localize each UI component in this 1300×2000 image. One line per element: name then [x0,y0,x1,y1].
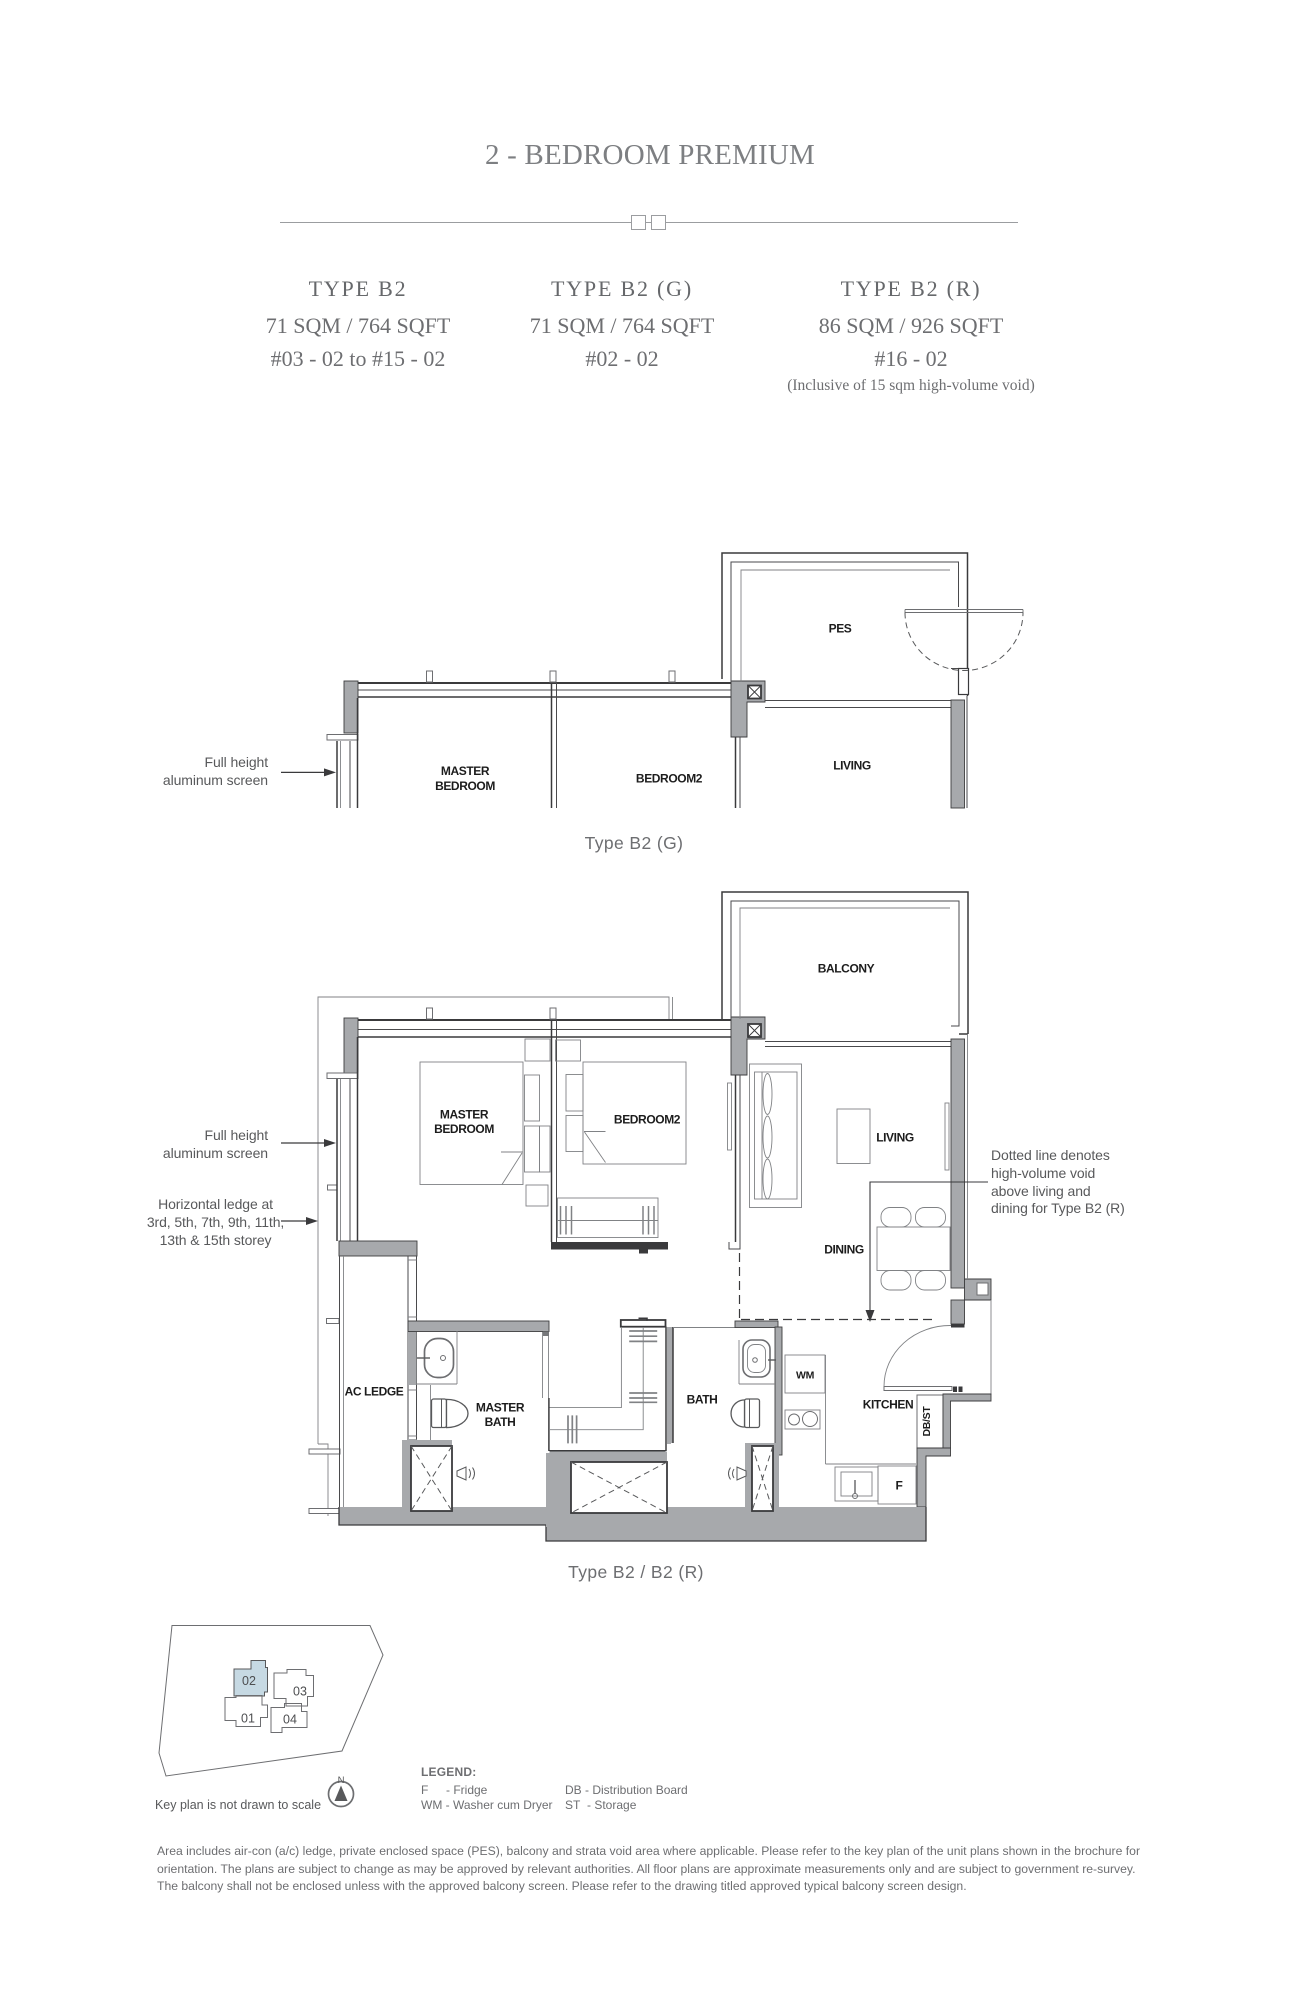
svg-text:BATH: BATH [485,1415,516,1429]
svg-text:DB/ST: DB/ST [921,1406,933,1437]
svg-text:02: 02 [242,1674,256,1688]
svg-text:BEDROOM: BEDROOM [435,779,495,793]
svg-text:MASTER: MASTER [441,764,490,778]
svg-text:LIVING: LIVING [833,759,871,773]
svg-text:MASTER: MASTER [476,1401,525,1415]
svg-text:F: F [896,1479,903,1493]
svg-text:01: 01 [241,1712,255,1726]
svg-text:BEDROOM2: BEDROOM2 [636,772,703,786]
svg-text:03: 03 [293,1685,307,1699]
svg-text:KITCHEN: KITCHEN [863,1398,914,1412]
svg-text:BATH: BATH [687,1393,718,1407]
svg-text:AC LEDGE: AC LEDGE [345,1385,404,1399]
svg-text:BALCONY: BALCONY [818,962,875,976]
svg-text:WM: WM [796,1370,815,1382]
svg-text:PES: PES [829,622,852,636]
svg-text:N: N [338,1775,345,1786]
svg-text:BEDROOM2: BEDROOM2 [614,1113,681,1127]
svg-text:MASTER: MASTER [440,1108,489,1122]
svg-text:BEDROOM: BEDROOM [434,1122,494,1136]
svg-text:04: 04 [283,1713,297,1727]
svg-text:LIVING: LIVING [876,1131,914,1145]
svg-text:DINING: DINING [824,1243,864,1257]
